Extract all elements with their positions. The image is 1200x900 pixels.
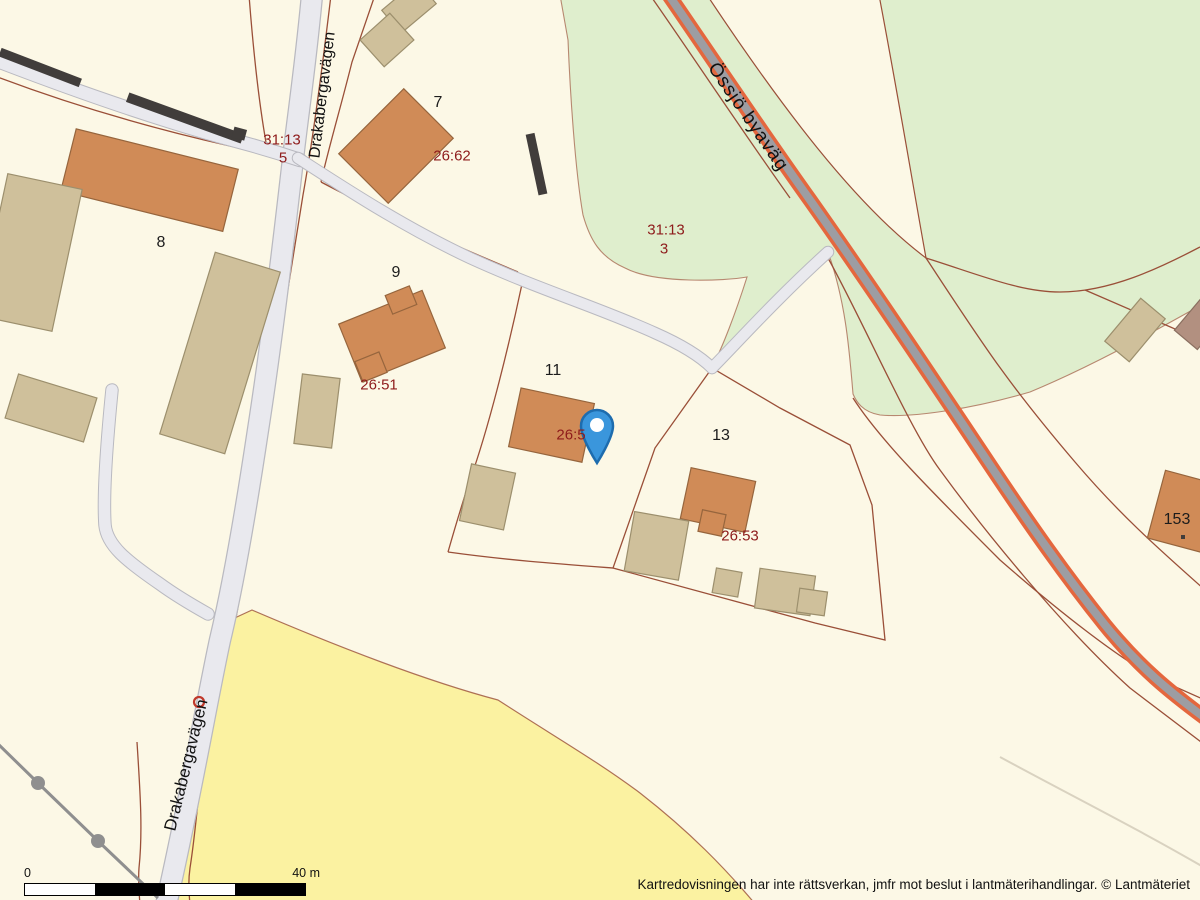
point-dot [1181,535,1185,539]
map-canvas[interactable]: Drakabergavägen Drakabergavägen Össjö by… [0,0,1200,900]
field-yellow-area [168,610,756,900]
outbuilding [712,568,742,597]
house-number-11: 11 [545,363,562,379]
scale-bar-segment [95,884,165,895]
house-number-8: 8 [157,235,166,251]
scale-bar: 0 40 m [24,866,320,898]
house-number-13: 13 [712,428,730,444]
attribution-text: Kartredovisningen har inte rättsverkan, … [638,877,1190,892]
parcel-label-31-13-5: 5 [279,151,287,166]
scale-bar-zero-label: 0 [24,866,31,880]
parcel-label-26-62: 26:62 [433,149,471,164]
building-house-8 [61,129,239,231]
power-pole [91,834,105,848]
parcel-line-faint [1000,757,1200,868]
outbuilding [459,464,515,530]
location-pin[interactable] [581,410,613,463]
scale-bar-segment [25,884,95,895]
scale-bar-max-label: 40 m [292,866,320,880]
dark-wall [526,133,548,196]
outbuilding [0,174,82,332]
parcel-line [249,0,267,148]
scale-bar-segments [24,883,306,896]
parcel-line [448,552,613,568]
parcel-label-31-13-3: 3 [660,242,668,257]
parcel-label-26-53: 26:53 [721,529,759,544]
parcel-label-31-13-b: 31:13 [647,223,685,238]
scale-bar-segment [165,884,235,895]
outbuilding [796,588,827,616]
scale-bar-segment [235,884,305,895]
parcel-line [853,398,1200,700]
power-pole [31,776,45,790]
outbuilding [624,512,689,581]
house-number-153: 153 [1164,512,1191,528]
parcel-label-26-51: 26:51 [360,378,398,393]
parcel-label-26-5x: 26:5 [556,428,585,443]
parcel-label-31-13: 31:13 [263,133,301,148]
house-number-7: 7 [434,95,443,111]
outbuilding [294,374,340,448]
outbuilding [5,374,97,442]
house-number-9: 9 [392,265,401,281]
